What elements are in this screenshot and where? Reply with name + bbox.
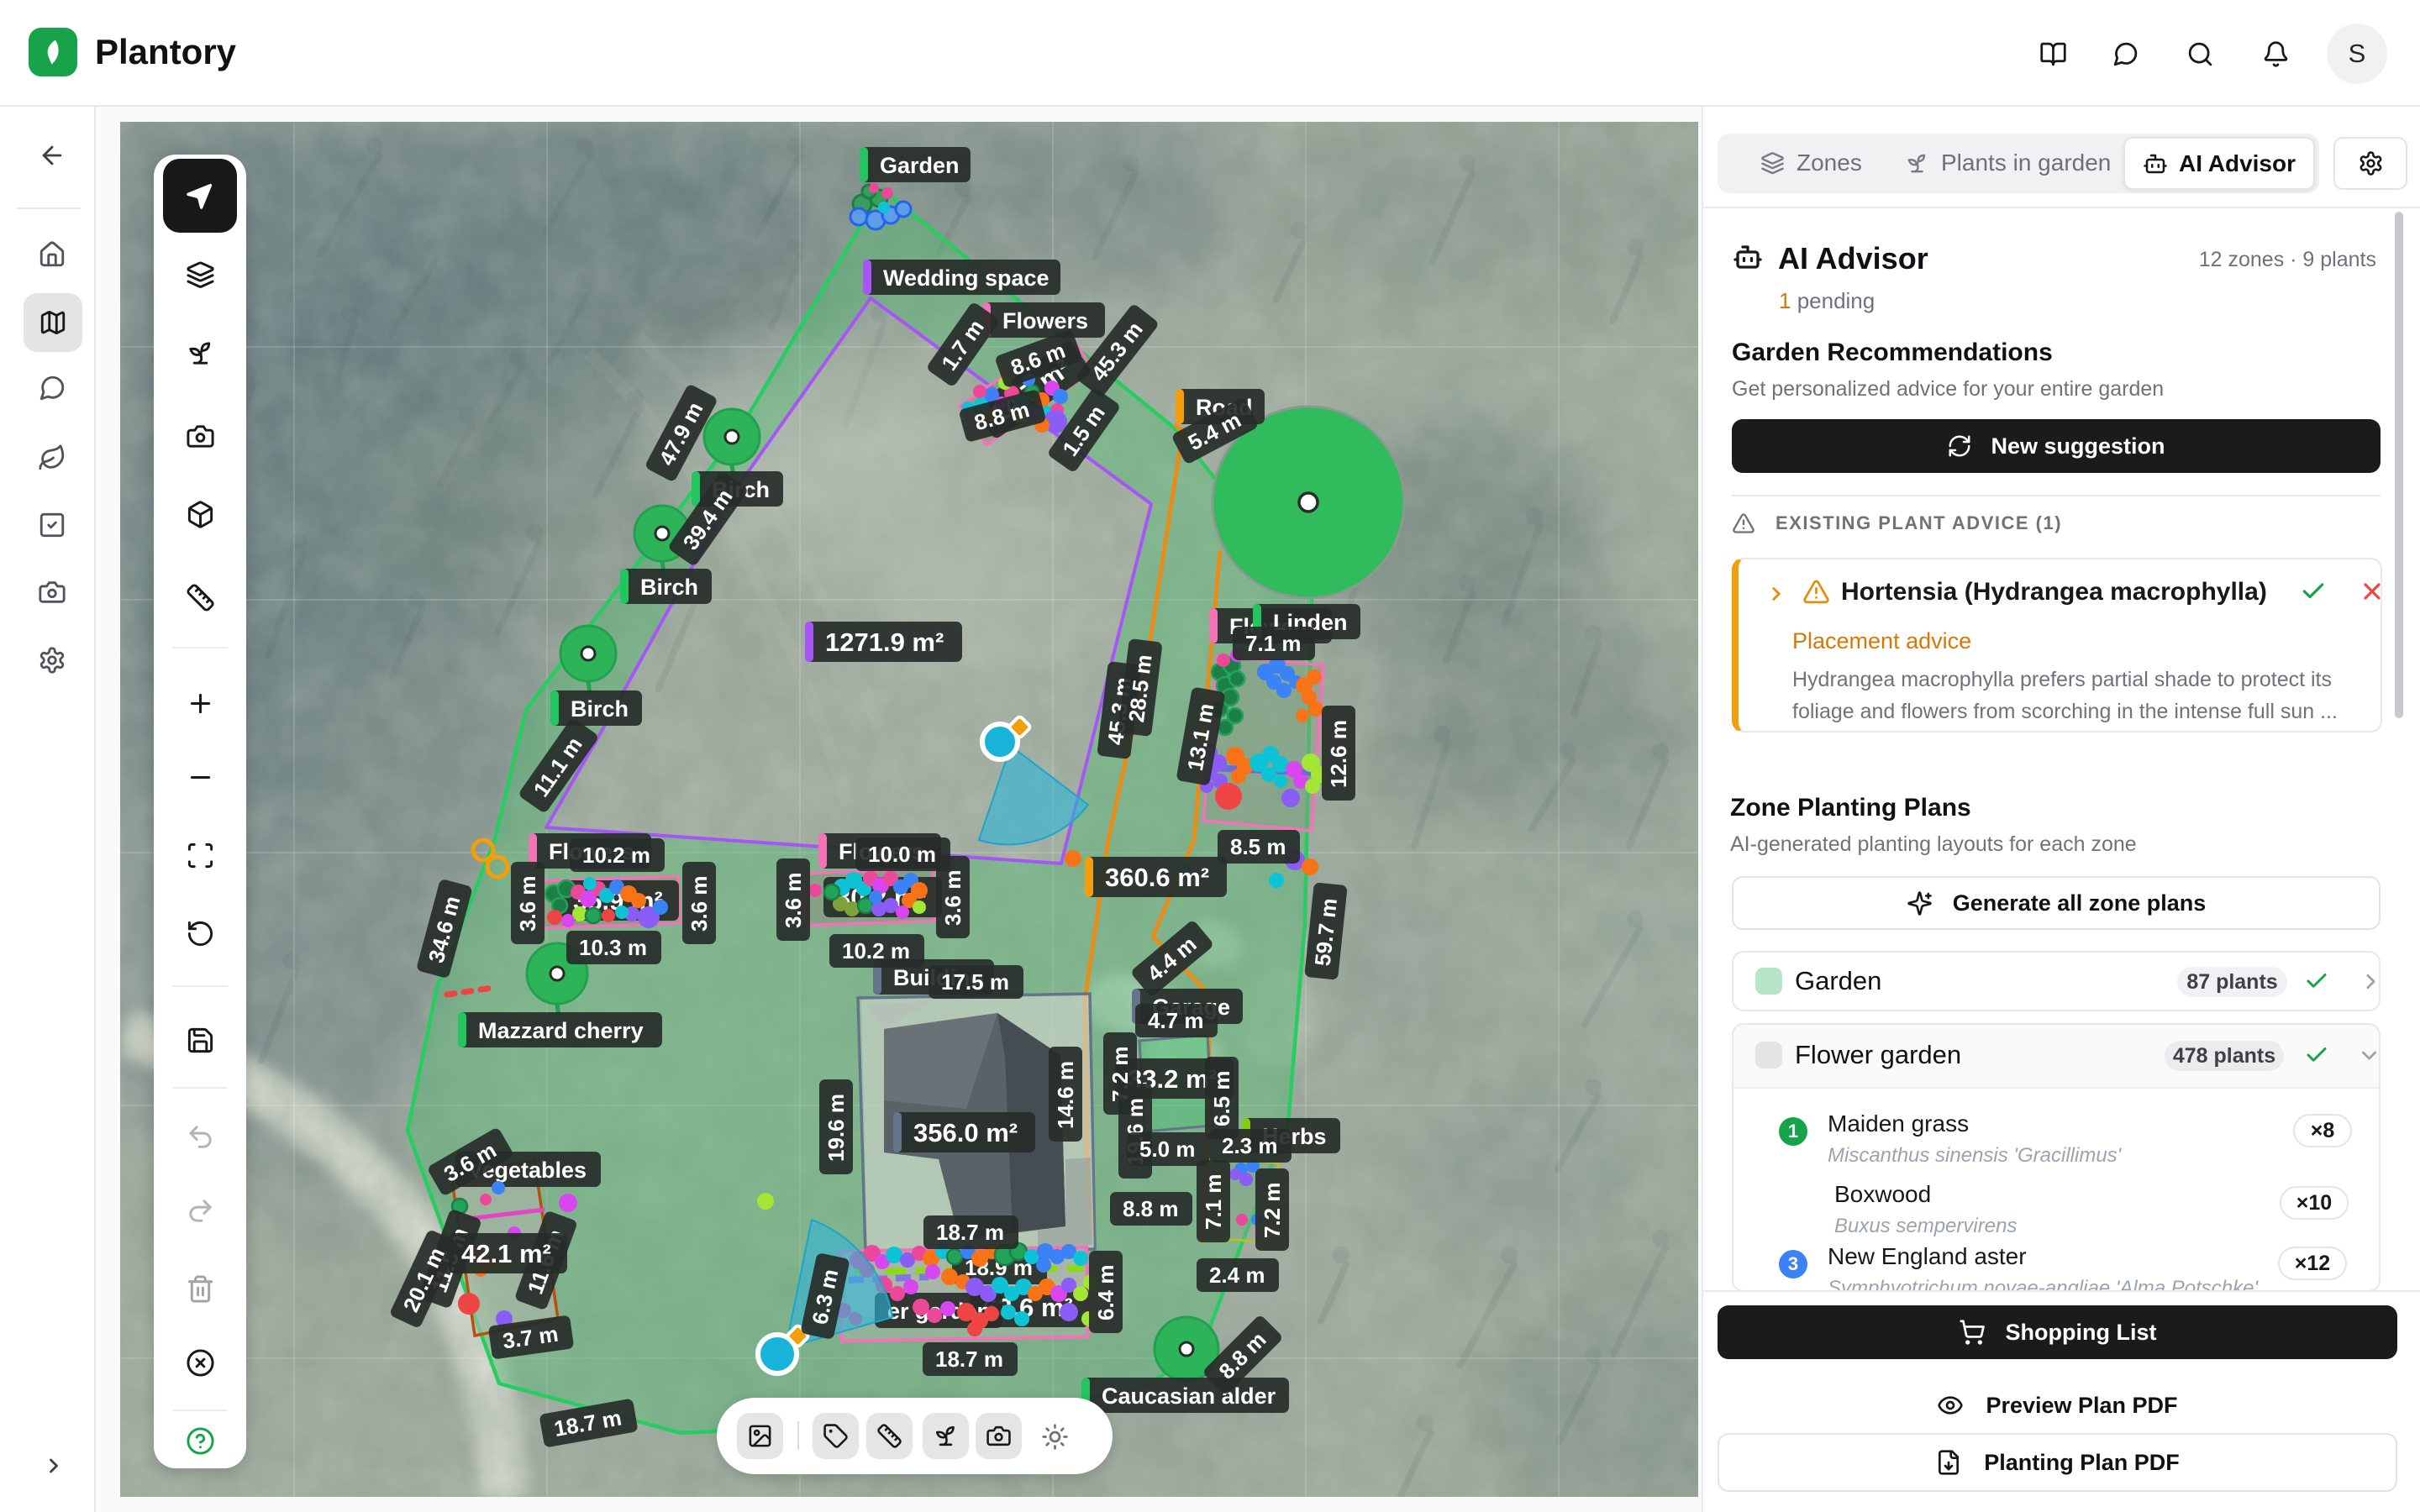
svg-text:6.4 m: 6.4 m — [1093, 1265, 1118, 1321]
svg-text:1271.9 m²: 1271.9 m² — [825, 627, 944, 657]
svg-text:8.5 m: 8.5 m — [1230, 834, 1286, 859]
svg-text:4.7 m: 4.7 m — [1148, 1008, 1204, 1033]
svg-text:Caucasian alder: Caucasian alder — [1102, 1383, 1276, 1409]
svg-text:Birch: Birch — [640, 575, 698, 600]
svg-text:12.6 m: 12.6 m — [1326, 720, 1351, 788]
svg-text:360.6 m²: 360.6 m² — [1105, 863, 1209, 892]
svg-text:42.1 m²: 42.1 m² — [461, 1239, 551, 1268]
svg-text:Wedding space: Wedding space — [883, 265, 1050, 291]
svg-text:3.6 m: 3.6 m — [781, 873, 806, 929]
svg-text:Flowers: Flowers — [1002, 308, 1088, 333]
svg-text:8.8 m: 8.8 m — [1123, 1196, 1179, 1221]
svg-text:3.6 m: 3.6 m — [515, 876, 540, 932]
svg-text:6.5 m: 6.5 m — [1209, 1071, 1234, 1127]
svg-text:10.2 m: 10.2 m — [582, 843, 650, 868]
svg-text:2.3 m: 2.3 m — [1222, 1133, 1278, 1158]
svg-text:5.0 m: 5.0 m — [1139, 1137, 1196, 1162]
svg-text:Birch: Birch — [571, 696, 629, 722]
svg-text:7.2 m: 7.2 m — [1260, 1183, 1285, 1239]
svg-text:14.6 m: 14.6 m — [1053, 1061, 1078, 1129]
svg-text:19.6 m: 19.6 m — [823, 1094, 849, 1162]
svg-text:10.0 m: 10.0 m — [868, 842, 936, 867]
svg-text:Garden: Garden — [880, 153, 960, 178]
svg-text:7.1 m: 7.1 m — [1201, 1174, 1226, 1231]
svg-text:3.6 m: 3.6 m — [940, 870, 965, 927]
svg-text:356.0 m²: 356.0 m² — [913, 1118, 1018, 1147]
svg-text:Mazzard cherry: Mazzard cherry — [478, 1018, 644, 1043]
svg-text:7.1 m: 7.1 m — [1245, 631, 1302, 656]
svg-text:10.3 m: 10.3 m — [579, 935, 647, 960]
svg-text:2.4 m: 2.4 m — [1209, 1263, 1265, 1288]
svg-text:3.6 m: 3.6 m — [687, 876, 712, 932]
svg-text:18.7 m: 18.7 m — [935, 1347, 1003, 1372]
svg-text:18.7 m: 18.7 m — [936, 1220, 1004, 1245]
svg-text:10.2 m: 10.2 m — [842, 938, 910, 963]
svg-text:17.5 m: 17.5 m — [941, 969, 1009, 995]
